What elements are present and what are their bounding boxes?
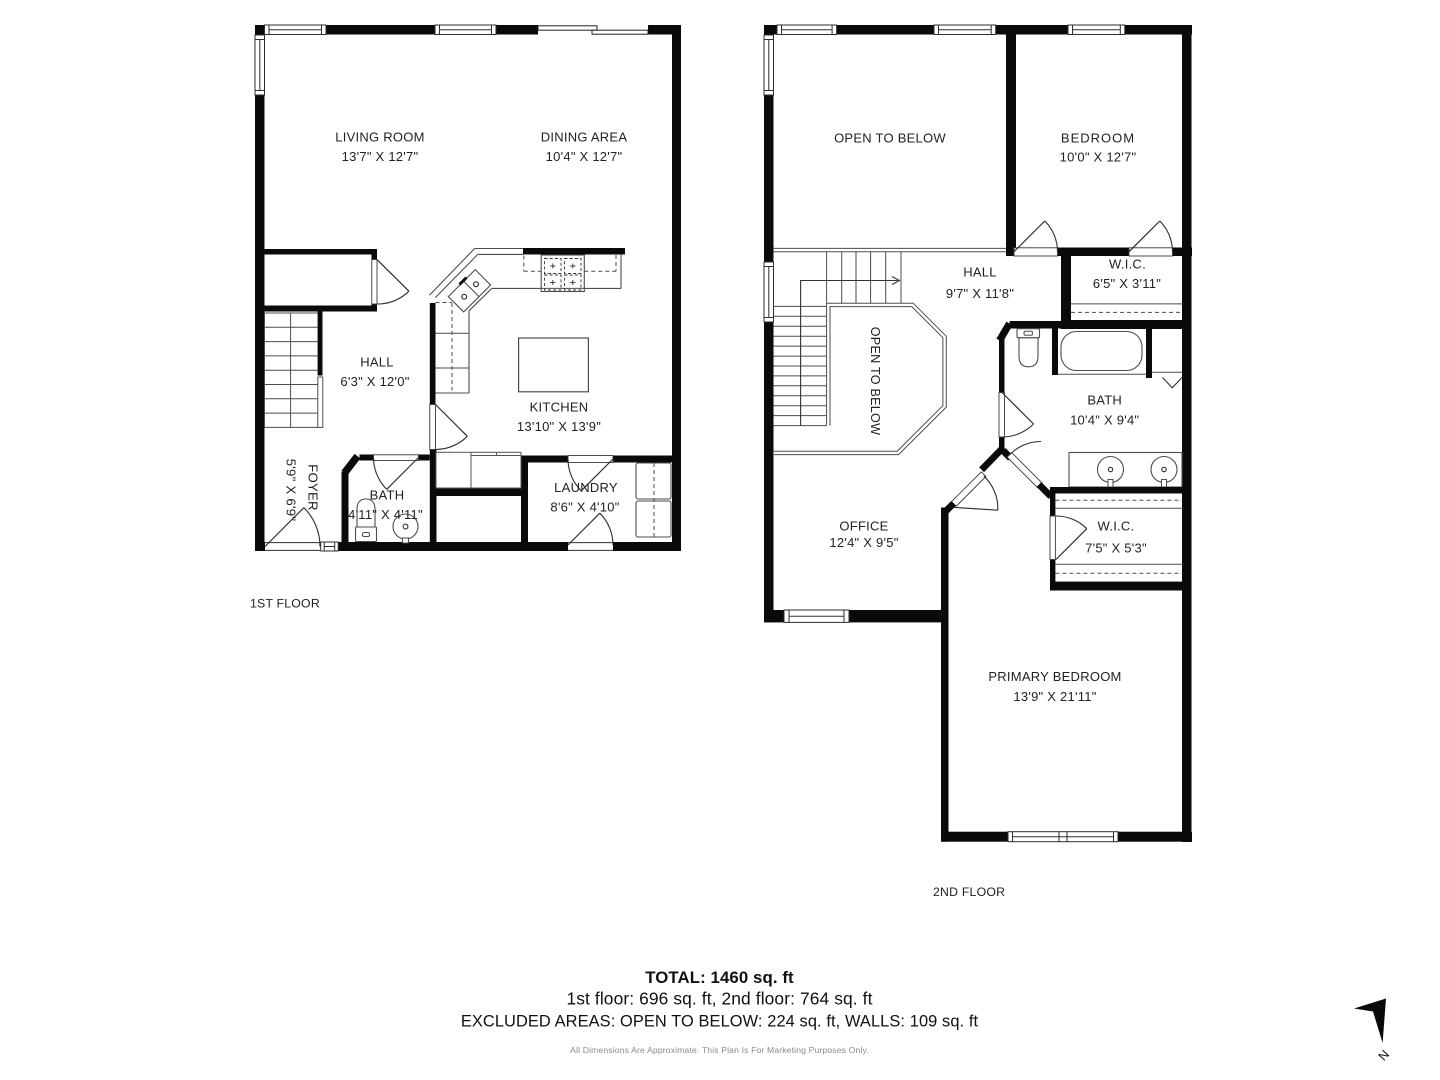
svg-text:W.I.C.: W.I.C. bbox=[1109, 257, 1146, 272]
svg-text:KITCHEN: KITCHEN bbox=[530, 399, 589, 414]
svg-text:6'3" X 12'0": 6'3" X 12'0" bbox=[340, 374, 409, 389]
svg-text:All Dimensions Are Approximate: All Dimensions Are Approximate. This Pla… bbox=[570, 1045, 869, 1055]
svg-text:EXCLUDED AREAS: OPEN TO BELOW:: EXCLUDED AREAS: OPEN TO BELOW: 224 sq. f… bbox=[461, 1013, 979, 1031]
svg-text:6'5" X 3'11": 6'5" X 3'11" bbox=[1093, 276, 1161, 291]
svg-text:10'4" X 12'7": 10'4" X 12'7" bbox=[546, 149, 623, 164]
svg-text:OFFICE: OFFICE bbox=[839, 519, 888, 534]
svg-text:5'9" X 6'9": 5'9" X 6'9" bbox=[284, 459, 299, 522]
svg-text:12'4" X 9'5": 12'4" X 9'5" bbox=[829, 535, 898, 550]
svg-text:10'4" X 9'4": 10'4" X 9'4" bbox=[1070, 413, 1139, 428]
svg-text:1st floor: 696 sq. ft, 2nd flo: 1st floor: 696 sq. ft, 2nd floor: 764 sq… bbox=[566, 989, 872, 1009]
svg-text:1ST FLOOR: 1ST FLOOR bbox=[250, 597, 320, 611]
svg-text:BEDROOM: BEDROOM bbox=[1061, 130, 1135, 145]
svg-text:2ND FLOOR: 2ND FLOOR bbox=[933, 885, 1005, 899]
svg-text:BATH: BATH bbox=[370, 488, 405, 503]
svg-text:LAUNDRY: LAUNDRY bbox=[554, 480, 618, 495]
svg-text:10'0" X 12'7": 10'0" X 12'7" bbox=[1060, 150, 1137, 165]
svg-text:BATH: BATH bbox=[1087, 393, 1122, 408]
svg-text:OPEN TO BELOW: OPEN TO BELOW bbox=[834, 130, 946, 145]
svg-text:PRIMARY BEDROOM: PRIMARY BEDROOM bbox=[988, 669, 1121, 684]
svg-text:13'10" X 13'9": 13'10" X 13'9" bbox=[517, 419, 601, 434]
svg-text:W.I.C.: W.I.C. bbox=[1098, 518, 1135, 533]
svg-text:OPEN TO BELOW: OPEN TO BELOW bbox=[868, 327, 882, 435]
svg-text:FOYER: FOYER bbox=[306, 464, 321, 511]
svg-text:8'6" X 4'10": 8'6" X 4'10" bbox=[550, 500, 619, 515]
svg-text:LIVING ROOM: LIVING ROOM bbox=[335, 129, 424, 144]
svg-text:7'5" X 5'3": 7'5" X 5'3" bbox=[1085, 540, 1147, 555]
svg-text:HALL: HALL bbox=[360, 355, 394, 370]
svg-text:9'7" X 11'8": 9'7" X 11'8" bbox=[946, 286, 1014, 301]
svg-text:13'9" X 21'11": 13'9" X 21'11" bbox=[1013, 689, 1096, 704]
svg-text:DINING AREA: DINING AREA bbox=[541, 129, 628, 144]
svg-text:TOTAL: 1460 sq. ft: TOTAL: 1460 sq. ft bbox=[645, 968, 794, 987]
svg-text:4'11" X 4'11": 4'11" X 4'11" bbox=[348, 507, 423, 522]
svg-text:13'7" X 12'7": 13'7" X 12'7" bbox=[342, 149, 419, 164]
svg-text:HALL: HALL bbox=[963, 265, 997, 280]
